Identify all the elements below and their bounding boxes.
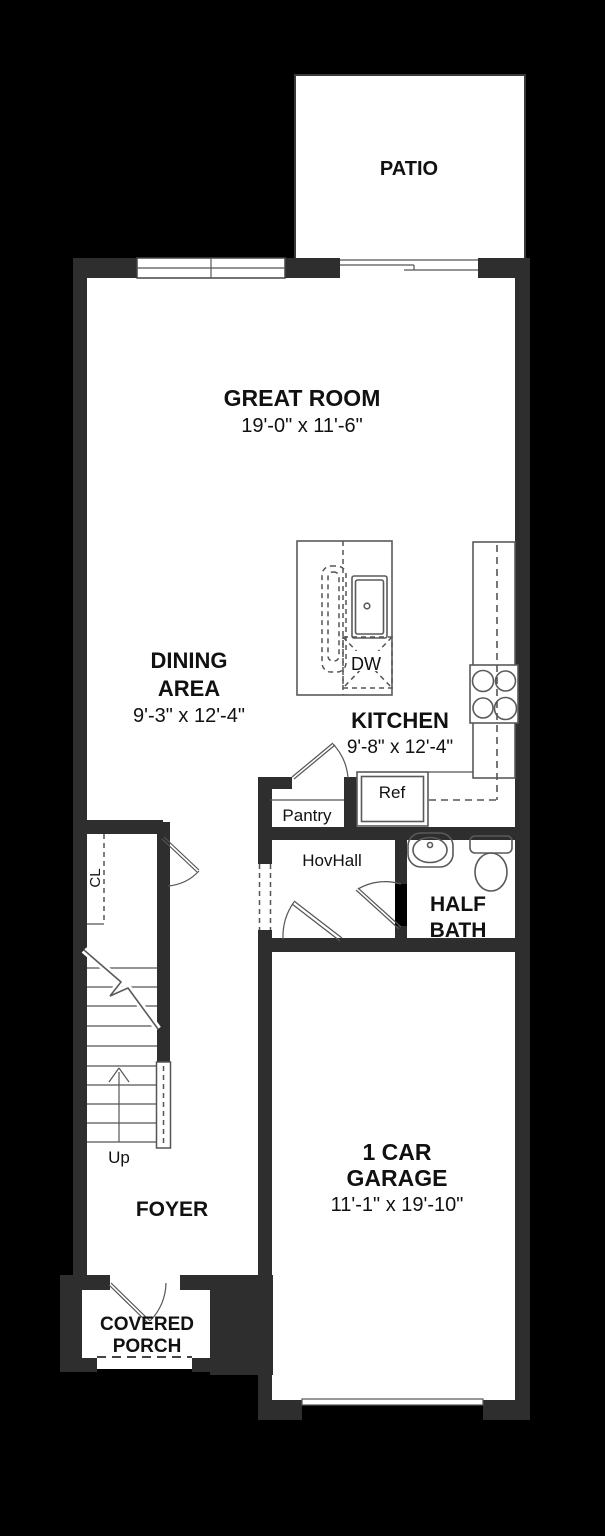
floor-plan-canvas: PATIO GREAT ROOM 19'-0" x 11'-6" DINING … bbox=[0, 0, 605, 1536]
pantry-label: Pantry bbox=[282, 806, 332, 825]
porch-bottom-wall-left bbox=[60, 1358, 97, 1372]
half-bath-label-line2: BATH bbox=[430, 919, 487, 942]
stair-railing bbox=[157, 1062, 171, 1148]
garage-bottom-stub-right bbox=[483, 1400, 530, 1420]
hall-cased-opening bbox=[258, 864, 272, 930]
porch-label-line2: PORCH bbox=[113, 1336, 182, 1357]
fridge-label: Ref bbox=[379, 783, 406, 802]
dining-foyer-wall bbox=[73, 820, 163, 834]
sliding-patio-door bbox=[340, 258, 478, 278]
garage-dims: 11'-1" x 19'-10" bbox=[331, 1194, 464, 1216]
kitchen-label: KITCHEN bbox=[351, 708, 449, 733]
right-wall bbox=[515, 258, 530, 1420]
foyer-label: FOYER bbox=[136, 1198, 208, 1221]
garage-door bbox=[302, 1399, 483, 1405]
porch-label-line1: COVERED bbox=[100, 1314, 194, 1335]
stairs-up-label: Up bbox=[108, 1148, 130, 1167]
porch-garage-wall bbox=[210, 1290, 273, 1375]
great-room-dims: 19'-0" x 11'-6" bbox=[241, 415, 363, 437]
pantry-top-wall-left bbox=[258, 777, 292, 789]
hall-label: HovHall bbox=[302, 851, 362, 870]
porch-step bbox=[97, 1358, 192, 1369]
bath-left-wall-upper bbox=[395, 832, 407, 884]
great-room-window bbox=[137, 258, 285, 278]
range-cooktop bbox=[470, 665, 518, 723]
left-wall bbox=[73, 258, 87, 1290]
closet-label: CL bbox=[87, 868, 104, 887]
garage-top-wall bbox=[258, 938, 530, 952]
garage-bottom-stub-left bbox=[258, 1400, 302, 1420]
floor-plan-drawing: PATIO GREAT ROOM 19'-0" x 11'-6" DINING … bbox=[0, 0, 605, 1536]
dining-label-line2: AREA bbox=[158, 676, 220, 701]
pantry-right-wall bbox=[344, 777, 357, 828]
garage-label-line1: 1 CAR bbox=[362, 1139, 431, 1165]
kitchen-dims: 9'-8" x 12'-4" bbox=[347, 737, 453, 758]
garage-label-line2: GARAGE bbox=[347, 1165, 448, 1191]
half-bath-label-line1: HALF bbox=[430, 893, 486, 916]
kitchen-sink bbox=[352, 576, 387, 638]
porch-left-wall bbox=[60, 1275, 82, 1372]
front-door-opening bbox=[110, 1275, 180, 1290]
foyer-bottom-wall-right bbox=[180, 1275, 273, 1290]
dining-label-line1: DINING bbox=[151, 648, 228, 673]
dishwasher-label: DW bbox=[351, 654, 381, 674]
hall-bath-top-wall bbox=[258, 827, 515, 840]
porch-bottom-wall-right bbox=[192, 1358, 213, 1372]
great-room-label: GREAT ROOM bbox=[224, 385, 381, 411]
patio-label: PATIO bbox=[380, 158, 438, 180]
dining-dims: 9'-3" x 12'-4" bbox=[133, 705, 245, 727]
